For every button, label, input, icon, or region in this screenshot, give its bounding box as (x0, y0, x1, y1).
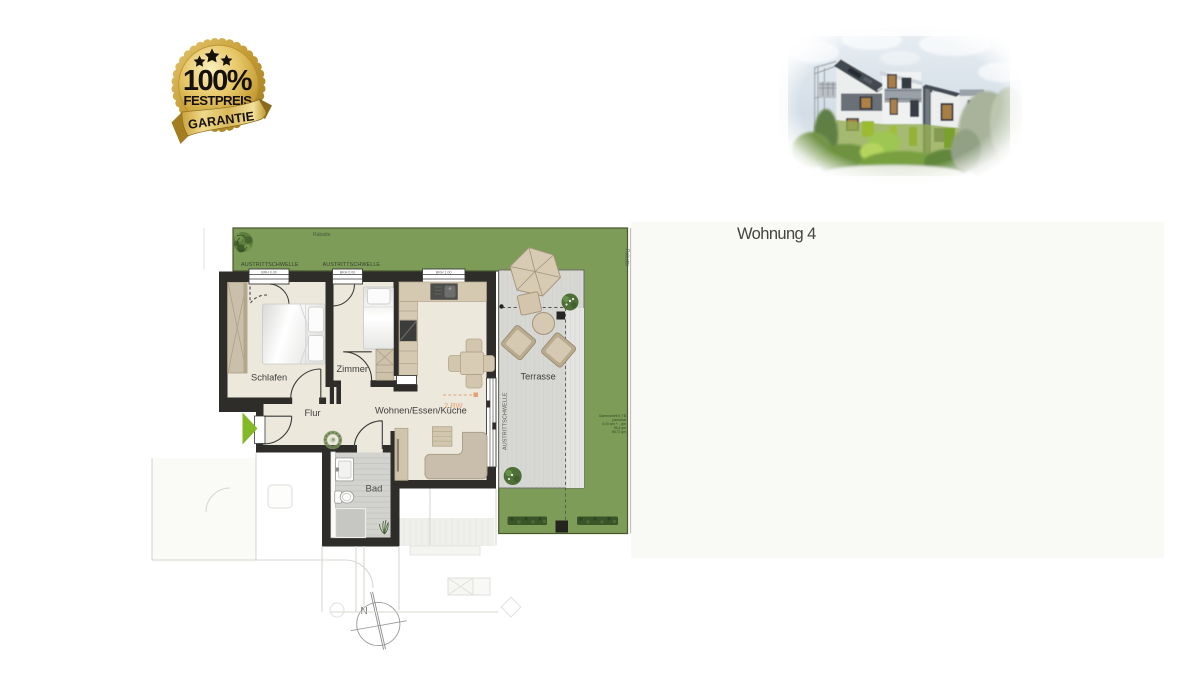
svg-text:Schlafen: Schlafen (251, 373, 287, 383)
svg-text:Zimmer: Zimmer (337, 364, 369, 374)
svg-text:Wohnung 4: Wohnung 4 (737, 225, 816, 243)
svg-text:Terrasse: Terrasse (521, 372, 556, 382)
svg-text:BRH 0.00: BRH 0.00 (261, 270, 277, 274)
svg-text:AUSTRITTSCHWELLE: AUSTRITTSCHWELLE (323, 262, 381, 268)
svg-text:98,72 qm: 98,72 qm (612, 430, 626, 434)
svg-text:Flur: Flur (305, 408, 321, 418)
svg-text:Rabatte: Rabatte (624, 249, 630, 267)
svg-text:AUSTRITTSCHWELLE: AUSTRITTSCHWELLE (241, 262, 299, 268)
svg-text:Bad: Bad (366, 484, 383, 495)
svg-text:BRH 1.00: BRH 1.00 (436, 270, 452, 274)
svg-text:BRH 0.00: BRH 0.00 (340, 270, 356, 274)
svg-text:2 RW: 2 RW (444, 401, 464, 410)
svg-text:Rabatte: Rabatte (313, 232, 331, 238)
svg-text:AUSTRITTSCHWELLE: AUSTRITTSCHWELLE (503, 392, 509, 450)
